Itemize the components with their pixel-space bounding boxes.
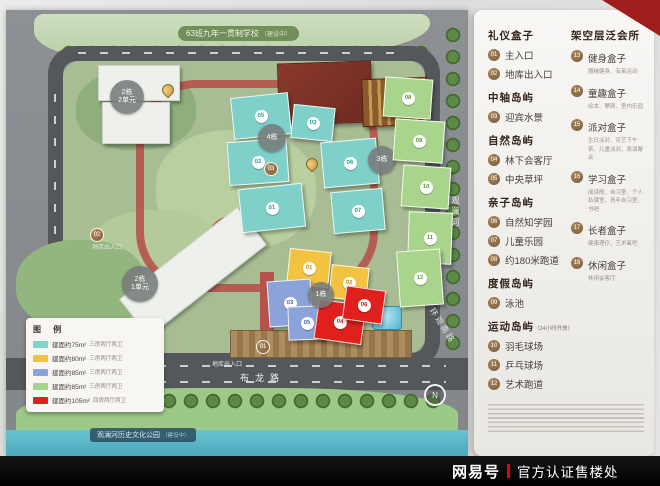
tower-label-line: 3栋 xyxy=(377,156,388,164)
unit-badge: 01 xyxy=(265,201,279,215)
lane-dash-top xyxy=(78,52,398,54)
section-header: 自然岛屿 xyxy=(488,135,534,147)
item-label: 儿童乐园 xyxy=(505,234,543,248)
item-number-badge: 14 xyxy=(571,85,583,97)
amenity-spot-badge: 03 xyxy=(264,162,278,176)
garage-exit-label-bottom: 地库出入口 xyxy=(212,359,242,368)
amenity-item: 10羽毛球场 xyxy=(488,339,561,353)
unit-badge: 10 xyxy=(419,180,433,194)
tower-label-2-2: 2栋 2单元 xyxy=(110,80,144,114)
floorplan-legend-title: 图 例 xyxy=(33,324,157,335)
section-nature: 自然岛屿 04林下会客厅 05中央草坪 xyxy=(488,133,561,186)
item-description: 生日派对、花艺下午茶、儿童派对、表演聚会 xyxy=(588,137,644,163)
unit-badge: 05 xyxy=(300,316,313,329)
tower-label-2-1: 2栋 1单元 xyxy=(122,266,158,302)
master-plan-map: 63班九年一贯制学校 （建设中） 2栋 2单元 2栋 1单元 xyxy=(6,10,468,456)
legend-swatch-red xyxy=(33,397,48,404)
site-plan-page: 63班九年一贯制学校 （建设中） 2栋 2单元 2栋 1单元 xyxy=(0,0,660,486)
floorplan-legend-row: 建面约85m² 三房两厅两卫 xyxy=(33,381,157,391)
item-label: 休闲盒子 xyxy=(588,261,626,272)
unit-badge: 06 xyxy=(343,156,357,170)
item-label: 健身盒子 xyxy=(588,54,626,65)
section-header: 运动岛屿 xyxy=(488,321,534,333)
item-label: 乒乓球场 xyxy=(505,358,543,372)
amenity-item: 01主入口 xyxy=(488,48,561,62)
amenity-item: 09泳池 xyxy=(488,296,561,310)
building-unit: 01 xyxy=(238,183,306,233)
amenity-item: 12艺术跑道 xyxy=(488,377,561,391)
amenity-item: 06自然知学园 xyxy=(488,215,561,229)
panel-column-right: 架空层泛会所 13健身盒子器械健身、有氧运动 14童趣盒子绘本、攀爬、室内乐园 … xyxy=(571,28,644,400)
building-unit: 06 xyxy=(342,285,386,324)
item-number-badge: 11 xyxy=(488,359,500,371)
building-unit: 08 xyxy=(383,76,434,119)
park-label: 观澜河历史文化公园 （建设中） xyxy=(90,428,196,442)
tower-label-line: 4栋 xyxy=(267,134,278,142)
compass-north-icon: N xyxy=(424,384,446,406)
school-banner-text: 63班九年一贯制学校 xyxy=(186,29,259,38)
item-label: 自然知学园 xyxy=(505,215,553,229)
floorplan-legend-row: 建面约80m² 三房两厅两卫 xyxy=(33,353,157,363)
item-number-badge: 08 xyxy=(488,254,500,266)
floorplan-legend: 图 例 建面约75m² 三房两厅两卫 建面约80m² 三房两厅两卫 建面约85m… xyxy=(26,318,164,412)
section-sports: 运动岛屿（24小时开放） 10羽毛球场 11乒乓球场 12艺术跑道 xyxy=(488,319,561,391)
legend-layout: 三房两厅两卫 xyxy=(89,354,122,362)
building-unit: 03 xyxy=(290,104,335,142)
legend-swatch-yellow xyxy=(33,355,48,362)
watermark-bar: 网易号 官方认证售楼处 xyxy=(0,456,660,486)
unit-badge: 01 xyxy=(302,261,316,275)
unit-badge: 05 xyxy=(254,109,268,123)
item-description: 阅读舱、自习室、个人私课室、青年自习室、书吧 xyxy=(588,189,644,215)
item-number-badge: 13 xyxy=(571,50,583,62)
section-ceremony: 礼仪盒子 01主入口 02地库出入口 xyxy=(488,28,561,81)
garage-exit-label-left: 地库出入口 xyxy=(92,242,122,251)
amenity-spot-number: 01 xyxy=(260,344,267,350)
amenity-box-item: 13健身盒子器械健身、有氧运动 xyxy=(571,49,644,77)
item-number-badge: 17 xyxy=(571,222,583,234)
legend-area: 建面约75m² xyxy=(52,339,86,349)
tower-label-4: 4栋 xyxy=(258,124,286,152)
building-unit: 12 xyxy=(396,249,444,308)
floorplan-legend-row: 建面约105m² 四房两厅两卫 xyxy=(33,395,157,405)
amenity-box-item: 16学习盒子阅读舱、自习室、个人私课室、青年自习室、书吧 xyxy=(571,170,644,215)
school-banner: 63班九年一贯制学校 （建设中） xyxy=(178,26,299,41)
item-number-badge: 03 xyxy=(488,111,500,123)
legend-layout: 三房两厅两卫 xyxy=(89,340,122,348)
item-description: 绘本、攀爬、室内乐园 xyxy=(588,103,643,112)
item-description: 休闲会客厅 xyxy=(588,275,626,284)
section-resort: 度假岛屿 09泳池 xyxy=(488,276,561,310)
amenity-box-item: 15派对盒子生日派对、花艺下午茶、儿童派对、表演聚会 xyxy=(571,118,644,163)
school-banner-note: （建设中） xyxy=(261,32,291,38)
amenity-item: 05中央草坪 xyxy=(488,172,561,186)
legend-area: 建面约105m² xyxy=(52,395,90,405)
legend-area: 建面约80m² xyxy=(52,353,86,363)
red-corner-ribbon xyxy=(602,0,660,36)
building-unit: 07 xyxy=(330,188,385,234)
item-number-badge: 18 xyxy=(571,257,583,269)
watermark-label: 官方认证售楼处 xyxy=(517,461,619,481)
amenity-box-item: 14童趣盒子绘本、攀爬、室内乐园 xyxy=(571,84,644,112)
legend-swatch-blue xyxy=(33,369,48,376)
unit-badge: 06 xyxy=(357,298,372,313)
item-number-badge: 07 xyxy=(488,235,500,247)
amenity-item: 02地库出入口 xyxy=(488,67,561,81)
item-number-badge: 02 xyxy=(488,68,500,80)
item-label: 林下会客厅 xyxy=(505,153,553,167)
road-guanlan-river-label: 观澜河 xyxy=(450,196,461,229)
unit-badge: 12 xyxy=(413,271,427,285)
amenity-item: 11乒乓球场 xyxy=(488,358,561,372)
amenity-item: 04林下会客厅 xyxy=(488,153,561,167)
river xyxy=(6,430,468,456)
item-number-badge: 04 xyxy=(488,154,500,166)
item-description: 器械健身、有氧运动 xyxy=(588,68,638,77)
legend-swatch-green xyxy=(33,383,48,390)
unit-badge: 03 xyxy=(306,116,320,130)
netease-brand: 网易号 xyxy=(452,461,500,482)
item-number-badge: 06 xyxy=(488,216,500,228)
item-label: 艺术跑道 xyxy=(505,377,543,391)
panel-column-left: 礼仪盒子 01主入口 02地库出入口 中轴岛屿 03迎宾水景 自然岛屿 04林下… xyxy=(488,28,561,400)
watermark-text: 网易号 官方认证售楼处 xyxy=(452,461,619,482)
legend-layout: 三房两厅两卫 xyxy=(89,368,122,376)
item-number-badge: 09 xyxy=(488,297,500,309)
tower-label-line: 1单元 xyxy=(131,284,149,292)
item-label: 童趣盒子 xyxy=(588,89,626,100)
road-bulong-label: 布龙路 xyxy=(240,371,285,384)
building-unit: 09 xyxy=(393,118,446,163)
unit-badge: 02 xyxy=(251,155,265,169)
amenity-spot-badge: 02 xyxy=(90,228,104,242)
item-number-badge: 05 xyxy=(488,173,500,185)
section-header: 中轴岛屿 xyxy=(488,92,534,104)
park-label-text: 观澜河历史文化公园 xyxy=(97,432,160,439)
section-header-suffix: （24小时开放） xyxy=(534,326,573,332)
amenity-box-item: 18休闲盒子休闲会客厅 xyxy=(571,256,644,284)
unit-badge: 08 xyxy=(401,91,415,105)
item-label: 羽毛球场 xyxy=(505,339,543,353)
watermark-divider xyxy=(507,464,510,478)
park-label-note: （建设中） xyxy=(162,433,190,439)
amenity-spot-number: 03 xyxy=(268,166,275,172)
compass-letter: N xyxy=(432,391,438,400)
tower-label-line: 1栋 xyxy=(316,291,327,299)
disclaimer-fine-print xyxy=(488,404,644,434)
unit-badge: 11 xyxy=(423,231,436,244)
tower-label-line: 2栋 xyxy=(122,89,133,97)
legend-swatch-teal xyxy=(33,341,48,348)
item-label: 主入口 xyxy=(505,48,534,62)
amenity-spot-number: 02 xyxy=(94,232,101,238)
item-label: 泳池 xyxy=(505,296,524,310)
amenity-spot-badge: 01 xyxy=(256,340,270,354)
item-description: 健康理疗、艺术氧吧 xyxy=(588,240,638,249)
item-label: 地库出入口 xyxy=(505,67,553,81)
legend-layout: 四房两厅两卫 xyxy=(93,396,126,404)
item-number-badge: 10 xyxy=(488,340,500,352)
tower-label-1: 1栋 xyxy=(308,282,334,308)
section-header: 度假岛屿 xyxy=(488,278,534,290)
floorplan-legend-row: 建面约75m² 三房两厅两卫 xyxy=(33,339,157,349)
building-unit: 10 xyxy=(401,164,452,209)
section-central-axis: 中轴岛屿 03迎宾水景 xyxy=(488,90,561,124)
item-number-badge: 16 xyxy=(571,171,583,183)
amenity-item: 07儿童乐园 xyxy=(488,234,561,248)
item-label: 派对盒子 xyxy=(588,123,626,134)
item-label: 迎宾水景 xyxy=(505,110,543,124)
tower-label-line: 2栋 xyxy=(135,276,146,284)
section-header: 亲子岛屿 xyxy=(488,197,534,209)
section-header: 礼仪盒子 xyxy=(488,30,534,42)
section-family: 亲子岛屿 06自然知学园 07儿童乐园 08约180米跑道 xyxy=(488,195,561,267)
amenity-item: 08约180米跑道 xyxy=(488,253,561,267)
amenity-item: 03迎宾水景 xyxy=(488,110,561,124)
legend-layout: 三房两厅两卫 xyxy=(89,382,122,390)
amenity-box-item: 17长者盒子健康理疗、艺术氧吧 xyxy=(571,221,644,249)
unit-badge: 07 xyxy=(351,204,365,218)
item-number-badge: 15 xyxy=(571,119,583,131)
item-label: 学习盒子 xyxy=(588,175,626,186)
item-number-badge: 12 xyxy=(488,378,500,390)
unit-badge: 09 xyxy=(412,134,426,148)
tower-label-line: 2单元 xyxy=(118,97,136,105)
item-label: 中央草坪 xyxy=(505,172,543,186)
legend-area: 建面约85m² xyxy=(52,367,86,377)
legend-area: 建面约85m² xyxy=(52,381,86,391)
item-label: 长者盒子 xyxy=(588,226,626,237)
floorplan-legend-row: 建面约85m² 三房两厅两卫 xyxy=(33,367,157,377)
item-number-badge: 01 xyxy=(488,49,500,61)
item-label: 约180米跑道 xyxy=(505,253,559,267)
section-podium-clubhouse: 架空层泛会所 13健身盒子器械健身、有氧运动 14童趣盒子绘本、攀爬、室内乐园 … xyxy=(571,28,644,283)
amenity-legend-panel: 礼仪盒子 01主入口 02地库出入口 中轴岛屿 03迎宾水景 自然岛屿 04林下… xyxy=(474,10,654,456)
